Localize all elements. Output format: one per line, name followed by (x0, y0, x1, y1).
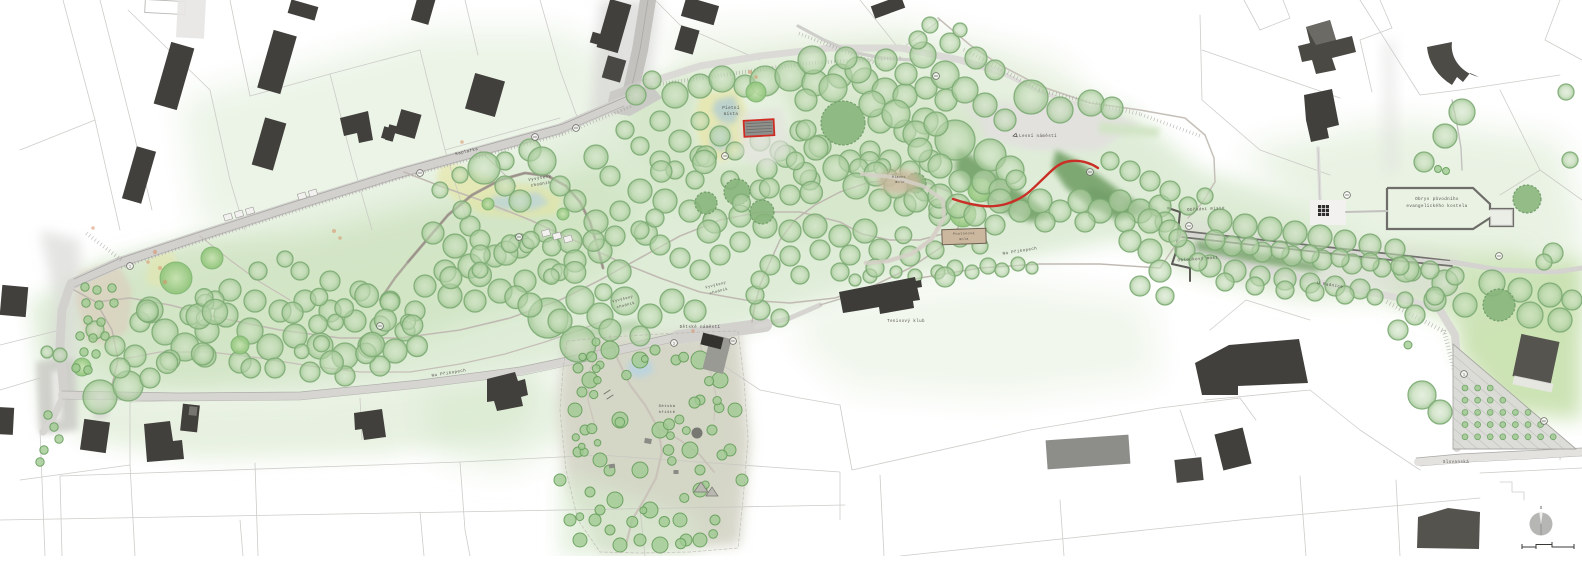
svg-text:evangelického kostela: evangelického kostela (1406, 204, 1467, 209)
svg-text:Tenisový klub: Tenisový klub (887, 319, 925, 324)
svg-text:Pontonová: Pontonová (953, 231, 975, 237)
svg-text:S: S (1540, 505, 1543, 511)
svg-text:místa: místa (724, 112, 739, 117)
svg-text:mola: mola (959, 237, 969, 242)
svg-text:Obrys původního: Obrys původního (1415, 197, 1459, 202)
svg-text:Slovanská: Slovanská (1443, 460, 1469, 465)
svg-text:Dětská: Dětská (659, 404, 676, 409)
svg-text:Dětské náměstí: Dětské náměstí (680, 325, 721, 330)
svg-text:molo: molo (895, 180, 905, 185)
svg-text:Hlavní: Hlavní (892, 175, 907, 180)
svg-text:Lesní náměstí: Lesní náměstí (1019, 134, 1057, 139)
svg-text:Pietní: Pietní (722, 106, 740, 111)
svg-text:hřiště: hřiště (659, 410, 676, 415)
